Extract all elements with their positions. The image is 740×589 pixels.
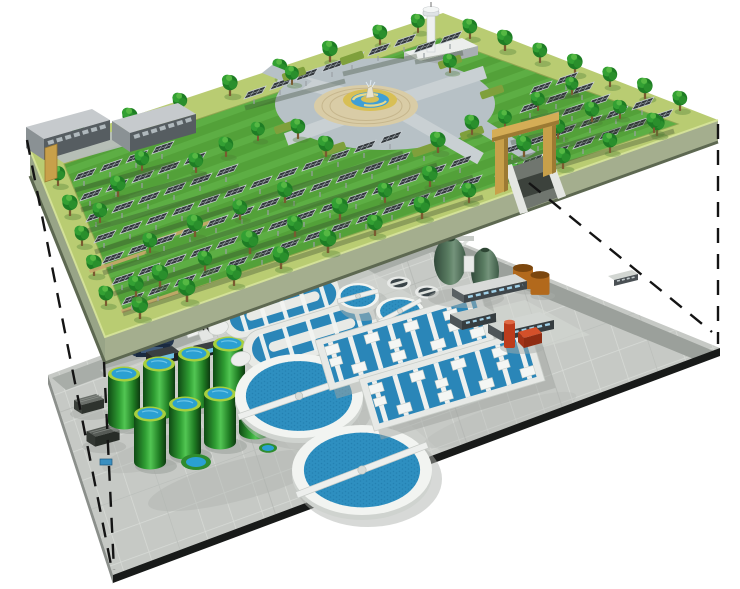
scene-svg: Cutaway concept illustration: landscaped… [0, 0, 740, 589]
west-gate-post [45, 144, 57, 182]
sampling-pool [181, 454, 211, 470]
tree [602, 67, 620, 91]
utility-cart [100, 459, 112, 465]
cutaway-illustration: Cutaway concept illustration: landscaped… [0, 0, 740, 589]
plant-outbuilding [608, 270, 638, 286]
tree [672, 91, 690, 115]
